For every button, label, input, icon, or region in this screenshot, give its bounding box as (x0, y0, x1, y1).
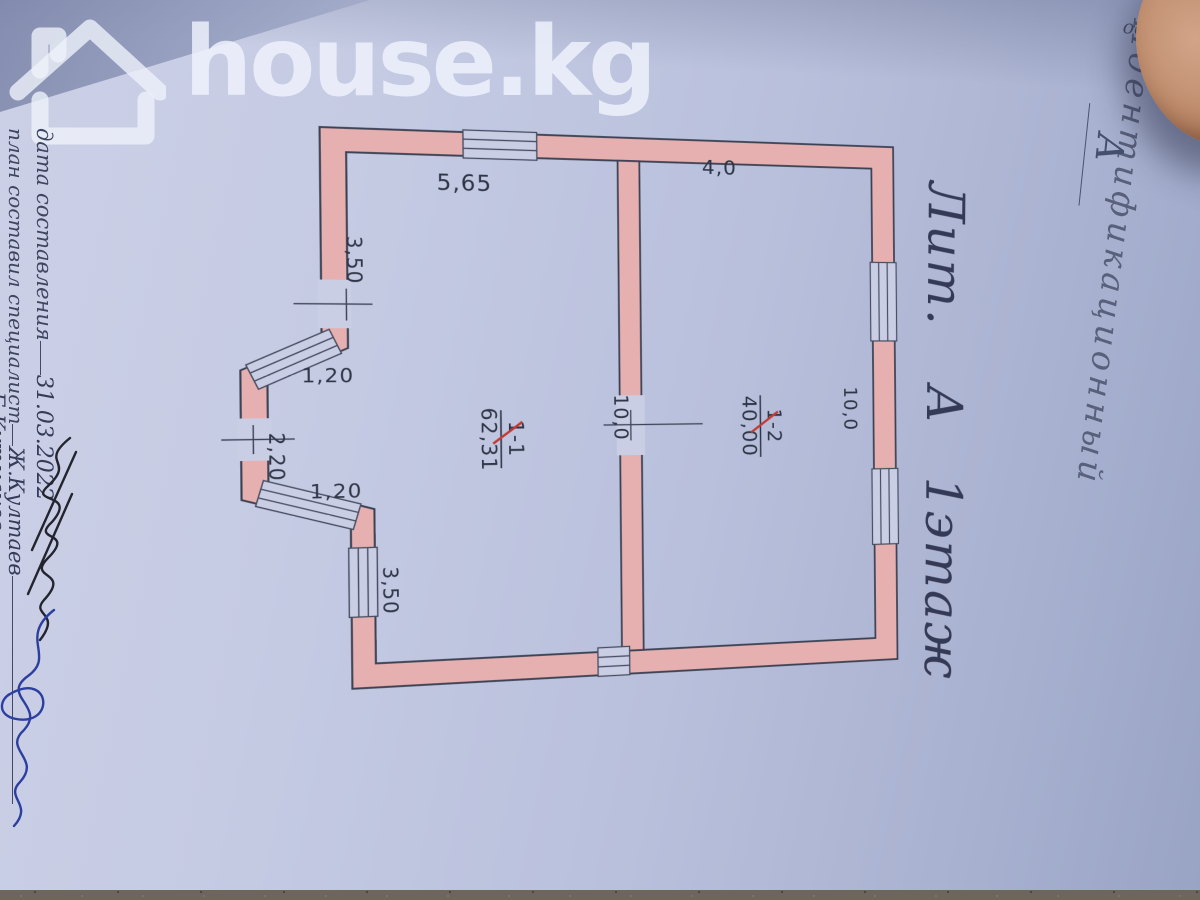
dim-left-upper: 3,50 (341, 236, 366, 285)
approver-name: Б.Кутманов (0, 392, 9, 531)
underline (12, 424, 15, 446)
floor-label: 1этаж (913, 477, 973, 681)
litera: Лит. (916, 181, 975, 327)
exterior-walls (238, 124, 898, 695)
dim-top: 5,65 (436, 170, 492, 196)
room-label-1: 1-1 62,31 (476, 407, 529, 471)
window-right-wall-lower (872, 468, 899, 544)
dim-bay-upper: 1,20 (301, 364, 354, 387)
litera-annotation: Лит.А1этаж (913, 181, 975, 680)
floor-plan: 5,65 4,0 3,50 1,20 2,20 1,20 3,50 10,0 1… (228, 90, 918, 718)
window-top-wall (463, 130, 537, 160)
building-letter: А (915, 385, 973, 425)
room-label-2: 1-2 40,00 (737, 395, 785, 457)
dim-bay-lower: 1,20 (310, 479, 363, 503)
dim-left-lower: 3,50 (378, 566, 403, 615)
specialist-label: план составил специалист (4, 128, 28, 424)
dim-right-top: 4,0 (702, 156, 737, 180)
dim-depth-left: 10,0 (609, 394, 632, 441)
underline (40, 341, 43, 375)
window-bottom-wall (598, 646, 630, 676)
signature-blue (0, 598, 74, 840)
dim-bay-left: 2,20 (263, 432, 289, 481)
dim-depth-right: 10,0 (839, 386, 861, 431)
date-label: дата составления (32, 128, 56, 341)
window-right-wall-upper (870, 262, 897, 341)
window-left-lower-wall (349, 547, 378, 617)
